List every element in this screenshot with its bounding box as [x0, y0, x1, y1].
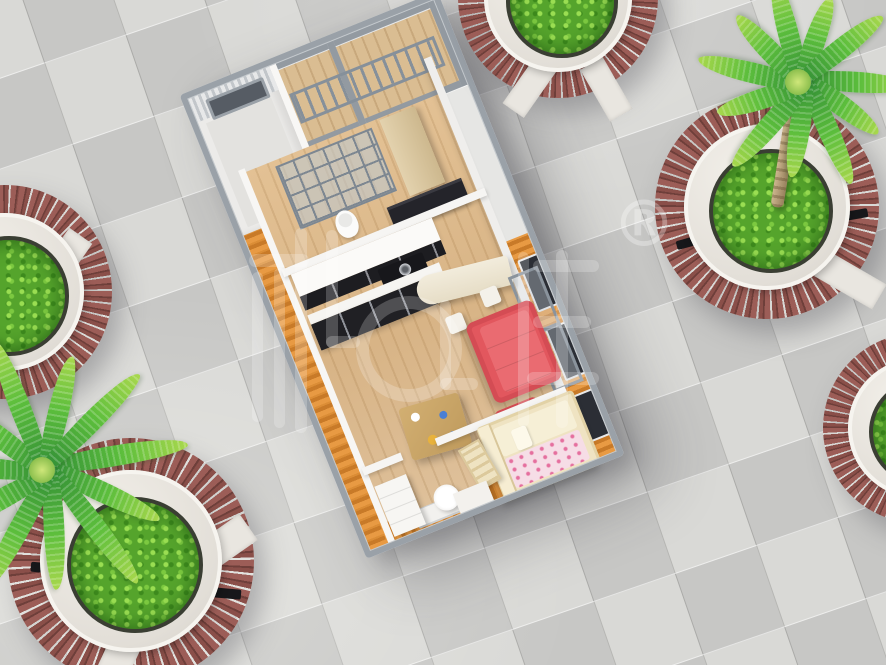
watermark-stroke	[274, 268, 285, 428]
watermark-stroke	[326, 336, 360, 348]
plaza-scene: Aerial 3D rendering of a container tiny-…	[0, 0, 886, 665]
watermark-stroke	[440, 300, 451, 390]
watermark-stroke	[295, 228, 307, 433]
watermark-stroke	[556, 250, 568, 428]
watermark-stroke	[326, 230, 338, 348]
palm-crown	[785, 69, 811, 95]
palm-tree-top-right	[678, 0, 886, 202]
registered-trademark-symbol: ®	[612, 188, 676, 262]
watermark-stroke	[440, 378, 478, 390]
palm-crown	[29, 457, 55, 483]
watermark-stroke	[252, 272, 263, 422]
palm-tree-bottom-left	[0, 330, 182, 610]
watermark-stroke	[518, 252, 529, 427]
